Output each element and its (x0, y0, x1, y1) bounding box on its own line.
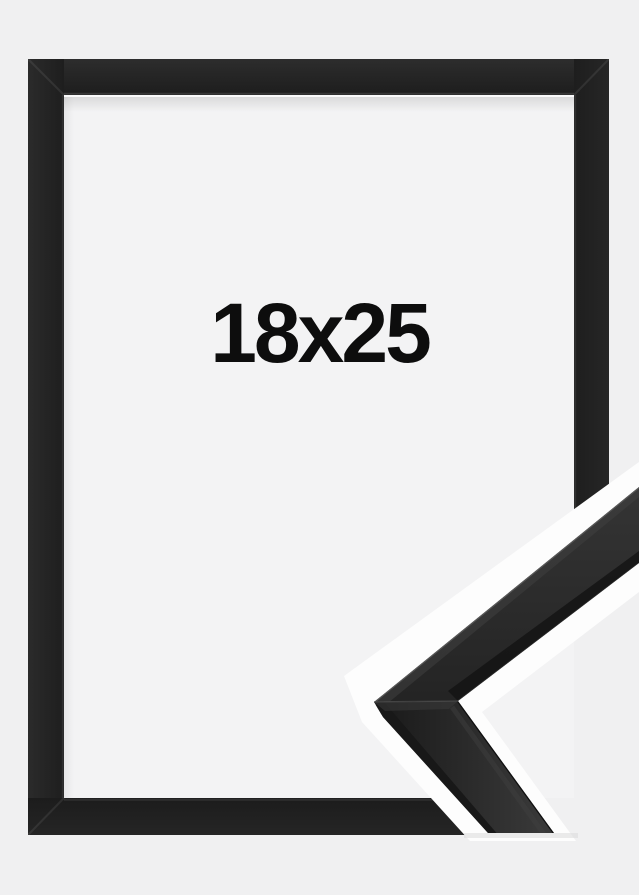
frame-left-bar (28, 59, 64, 835)
frame-bottom-bar-cut (28, 798, 468, 835)
frame-photo-svg (0, 0, 639, 895)
frame-top-bar (28, 59, 609, 95)
product-photo: 18x25 (0, 0, 639, 895)
size-label: 18x25 (0, 287, 639, 379)
